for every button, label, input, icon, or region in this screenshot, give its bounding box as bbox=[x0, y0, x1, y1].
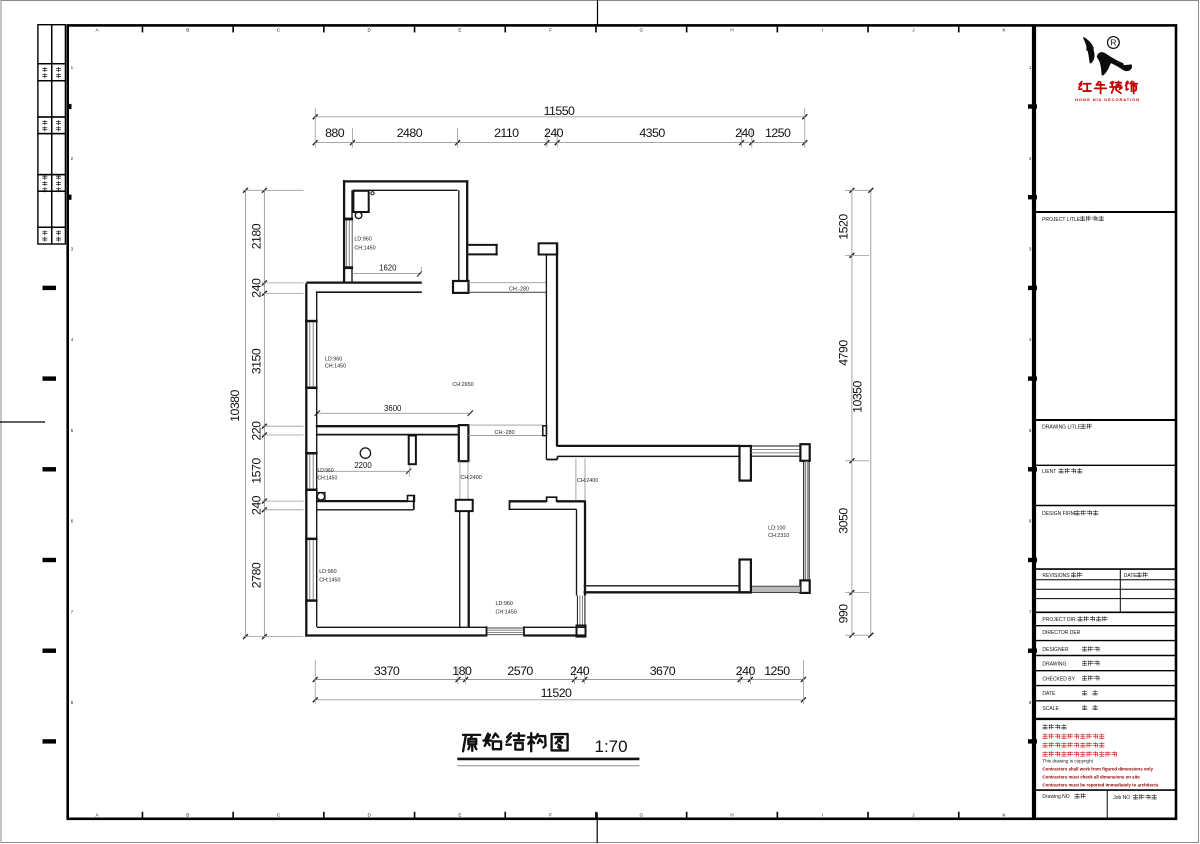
svg-text:DATE: DATE bbox=[1042, 691, 1056, 697]
svg-text:990: 990 bbox=[837, 604, 851, 624]
svg-text:G: G bbox=[640, 812, 644, 817]
svg-text:R: R bbox=[1110, 38, 1116, 48]
svg-text:3050: 3050 bbox=[837, 508, 851, 534]
svg-text:6: 6 bbox=[71, 519, 74, 524]
svg-text:7: 7 bbox=[1029, 609, 1032, 614]
svg-text:240: 240 bbox=[249, 278, 263, 298]
svg-text:DESIGN FIRM: DESIGN FIRM bbox=[1042, 511, 1075, 517]
svg-text:DRAWING LITLE: DRAWING LITLE bbox=[1042, 425, 1081, 431]
svg-text:5: 5 bbox=[1029, 428, 1032, 433]
svg-text:180: 180 bbox=[452, 664, 472, 678]
svg-text:3: 3 bbox=[1029, 247, 1032, 252]
svg-text:CH:1450: CH:1450 bbox=[319, 578, 340, 584]
svg-text:H: H bbox=[730, 28, 733, 33]
svg-text:3600: 3600 bbox=[384, 404, 402, 413]
svg-text:8: 8 bbox=[71, 700, 74, 705]
svg-text:1520: 1520 bbox=[837, 214, 851, 240]
svg-text:240: 240 bbox=[736, 664, 756, 678]
svg-text:1250: 1250 bbox=[765, 126, 791, 140]
svg-text:4350: 4350 bbox=[639, 126, 665, 140]
svg-text:CH:1450: CH:1450 bbox=[354, 245, 375, 251]
svg-text:11520: 11520 bbox=[541, 686, 572, 700]
svg-text:H: H bbox=[730, 812, 733, 817]
svg-text:This drawing is copyright: This drawing is copyright bbox=[1042, 759, 1093, 764]
svg-text:2780: 2780 bbox=[249, 562, 263, 588]
svg-text:E: E bbox=[458, 812, 461, 817]
svg-text:2110: 2110 bbox=[494, 126, 519, 140]
svg-text:8: 8 bbox=[1029, 700, 1032, 705]
svg-text:C: C bbox=[277, 812, 281, 817]
svg-text:SCALE: SCALE bbox=[1042, 706, 1059, 712]
svg-text:PROJECT DIR: PROJECT DIR bbox=[1042, 617, 1076, 623]
svg-text:E: E bbox=[458, 28, 461, 33]
svg-text:A: A bbox=[96, 812, 100, 817]
svg-text:I: I bbox=[822, 812, 823, 817]
svg-text:240: 240 bbox=[544, 126, 564, 140]
svg-text:CHECKED BY: CHECKED BY bbox=[1042, 676, 1075, 682]
svg-text:CH:2310: CH:2310 bbox=[768, 533, 789, 539]
svg-text:3: 3 bbox=[71, 247, 74, 252]
svg-text:J: J bbox=[912, 28, 914, 33]
svg-text:Contractors shall work from fi: Contractors shall work from figured dime… bbox=[1042, 766, 1153, 771]
svg-text:J: J bbox=[912, 812, 914, 817]
svg-text:6: 6 bbox=[1029, 519, 1032, 524]
svg-text:1: 1 bbox=[71, 65, 74, 70]
svg-text:2570: 2570 bbox=[507, 664, 533, 678]
svg-text:DRAWING: DRAWING bbox=[1042, 661, 1066, 667]
svg-text:F: F bbox=[549, 812, 552, 817]
svg-text:2: 2 bbox=[1029, 156, 1032, 161]
svg-text:DIRECTOR DER: DIRECTOR DER bbox=[1042, 630, 1080, 636]
svg-text:3670: 3670 bbox=[650, 664, 676, 678]
svg-text:CH:1450: CH:1450 bbox=[325, 363, 346, 369]
svg-text:REVISIONS: REVISIONS bbox=[1042, 573, 1070, 579]
svg-text:D: D bbox=[368, 812, 372, 817]
svg-text:Contractors must be reported i: Contractors must be reported immediately… bbox=[1042, 782, 1158, 787]
svg-text:880: 880 bbox=[325, 126, 345, 140]
svg-text:3150: 3150 bbox=[249, 348, 263, 374]
svg-text:10380: 10380 bbox=[228, 389, 242, 421]
svg-text:CH:-280: CH:-280 bbox=[495, 430, 515, 436]
svg-text:HONG NIU DECORATION: HONG NIU DECORATION bbox=[1075, 97, 1140, 102]
svg-text:1:70: 1:70 bbox=[595, 737, 628, 756]
svg-text:CH:2400: CH:2400 bbox=[461, 475, 482, 481]
svg-text:1620: 1620 bbox=[379, 263, 397, 272]
svg-text:LD:960: LD:960 bbox=[325, 356, 342, 362]
svg-text:11550: 11550 bbox=[544, 104, 575, 118]
svg-text:D: D bbox=[368, 28, 372, 33]
svg-text:G: G bbox=[640, 28, 644, 33]
svg-text:220: 220 bbox=[249, 421, 263, 441]
svg-text:Drawing NO: Drawing NO bbox=[1042, 794, 1069, 800]
svg-text:LD:960: LD:960 bbox=[319, 569, 336, 575]
svg-text:CH:2400: CH:2400 bbox=[577, 478, 598, 484]
svg-text:Contractors must check all dim: Contractors must check all dimensions on… bbox=[1042, 774, 1140, 779]
svg-text:K: K bbox=[1003, 812, 1007, 817]
svg-text:5: 5 bbox=[71, 428, 74, 433]
svg-text:LD:960: LD:960 bbox=[354, 237, 371, 243]
svg-text:CH:1450: CH:1450 bbox=[496, 610, 517, 616]
svg-text:A: A bbox=[96, 28, 100, 33]
svg-text:240: 240 bbox=[249, 495, 263, 515]
svg-text:4: 4 bbox=[71, 337, 74, 342]
svg-text:CH:2650: CH:2650 bbox=[452, 382, 473, 388]
svg-text:240: 240 bbox=[735, 126, 755, 140]
svg-text:I: I bbox=[822, 28, 823, 33]
svg-text:1570: 1570 bbox=[249, 458, 263, 484]
svg-text:LD:960: LD:960 bbox=[496, 601, 513, 607]
svg-text:7: 7 bbox=[71, 609, 74, 614]
svg-text:2: 2 bbox=[71, 156, 74, 161]
svg-text:CH:-280: CH:-280 bbox=[509, 287, 529, 293]
svg-text:Job NO: Job NO bbox=[1113, 795, 1130, 801]
svg-text:240: 240 bbox=[570, 664, 590, 678]
svg-text:LIENT: LIENT bbox=[1042, 469, 1056, 475]
svg-text:1250: 1250 bbox=[764, 664, 790, 678]
svg-text:2180: 2180 bbox=[249, 223, 263, 249]
svg-text:1: 1 bbox=[1029, 65, 1032, 70]
svg-text:C: C bbox=[277, 28, 281, 33]
svg-text:K: K bbox=[1003, 28, 1007, 33]
svg-text:PROJECT LITLE: PROJECT LITLE bbox=[1042, 217, 1081, 223]
svg-text:3370: 3370 bbox=[374, 664, 400, 678]
svg-text:4790: 4790 bbox=[837, 340, 851, 366]
svg-text:4: 4 bbox=[1029, 337, 1032, 342]
svg-text:B: B bbox=[186, 28, 189, 33]
svg-text:LD:100: LD:100 bbox=[768, 526, 785, 532]
svg-text:10350: 10350 bbox=[851, 380, 865, 412]
svg-text:2200: 2200 bbox=[354, 461, 372, 470]
svg-text:F: F bbox=[549, 28, 552, 33]
svg-text:DESIGNER: DESIGNER bbox=[1042, 647, 1069, 653]
svg-text:CH:1450: CH:1450 bbox=[318, 476, 338, 482]
svg-text:DATE: DATE bbox=[1124, 573, 1138, 579]
svg-text:B: B bbox=[186, 812, 189, 817]
svg-text:2480: 2480 bbox=[397, 126, 423, 140]
svg-text:LD:960: LD:960 bbox=[318, 468, 334, 474]
